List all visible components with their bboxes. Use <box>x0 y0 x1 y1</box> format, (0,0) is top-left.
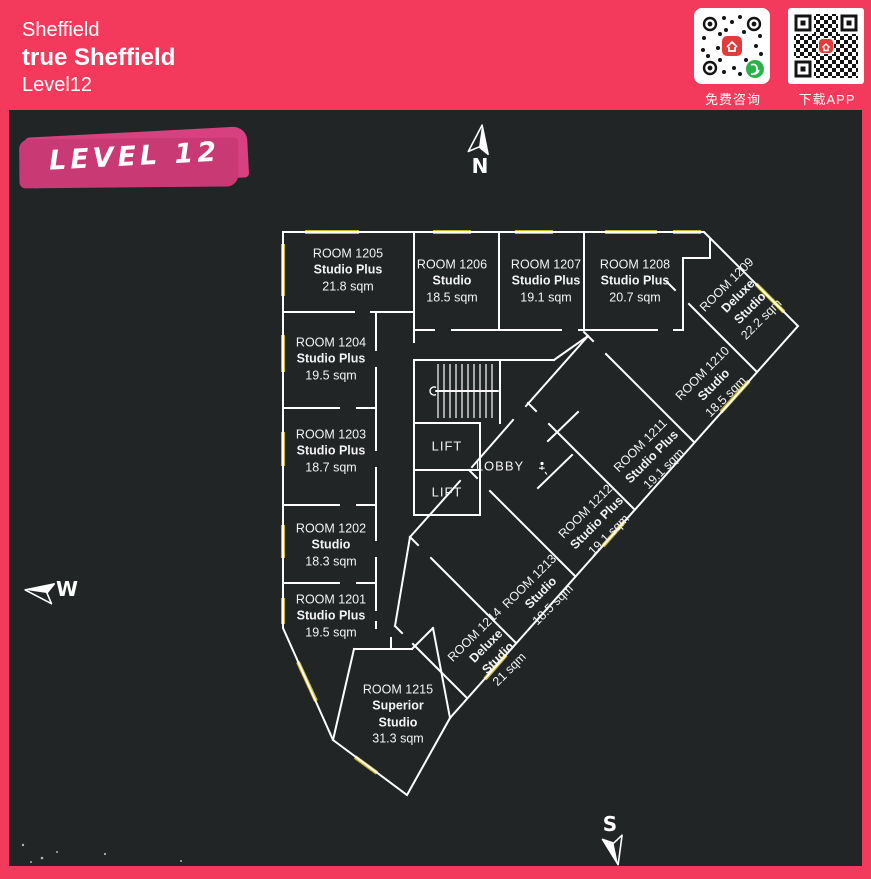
room-label-1206: ROOM 1206Studio18.5 sqm <box>417 257 487 306</box>
qr-consult-block: 免费咨询 <box>694 8 772 108</box>
lift-1-label: LIFT <box>432 439 463 454</box>
lift-2-label: LIFT <box>432 485 463 500</box>
qr-center-logo <box>722 36 742 56</box>
compass-south-label: S <box>603 812 617 836</box>
floorplan-panel: LEVEL 12 N W S LIFT LIFT LOBBY ROOM 1205… <box>9 110 862 866</box>
level-badge: LEVEL 12 <box>24 126 250 189</box>
qr-app-label: 下载APP <box>788 89 866 108</box>
room-label-1201: ROOM 1201Studio Plus19.5 sqm <box>296 592 366 641</box>
header-text: Sheffield true Sheffield Level12 <box>22 18 175 98</box>
compass-west-label: W <box>56 577 78 601</box>
compass-north-icon <box>468 124 492 155</box>
qr-app-code <box>788 8 864 84</box>
room-label-1202: ROOM 1202Studio18.3 sqm <box>296 521 366 570</box>
room-label-1204: ROOM 1204Studio Plus19.5 sqm <box>296 335 366 384</box>
room-label-1208: ROOM 1208Studio Plus20.7 sqm <box>600 257 670 306</box>
room-label-1207: ROOM 1207Studio Plus19.1 sqm <box>511 257 581 306</box>
header: Sheffield true Sheffield Level12 <box>0 0 871 110</box>
qr-consult-code <box>694 8 770 84</box>
page: { "header": { "city": "Sheffield", "prop… <box>0 0 871 879</box>
compass-north-label: N <box>472 154 489 178</box>
compass-south-icon <box>603 835 628 866</box>
compass-west-icon <box>24 580 55 604</box>
lobby-label: LOBBY <box>476 459 524 474</box>
qr-app-block: 下载APP <box>788 8 866 108</box>
decorative-dots <box>22 844 182 863</box>
wechat-badge-icon <box>746 60 764 78</box>
room-label-1205: ROOM 1205Studio Plus21.8 sqm <box>313 246 383 295</box>
room-label-1215: ROOM 1215Superior Studio31.3 sqm <box>352 682 444 747</box>
city-label: Sheffield <box>22 18 175 43</box>
accessibility-icon <box>539 462 547 475</box>
level-label: Level12 <box>22 73 175 98</box>
property-title: true Sheffield <box>22 43 175 73</box>
qr-consult-label: 免费咨询 <box>694 89 772 108</box>
staircase-icon <box>430 364 498 418</box>
level-badge-text: LEVEL 12 <box>48 137 221 177</box>
room-label-1203: ROOM 1203Studio Plus18.7 sqm <box>296 427 366 476</box>
